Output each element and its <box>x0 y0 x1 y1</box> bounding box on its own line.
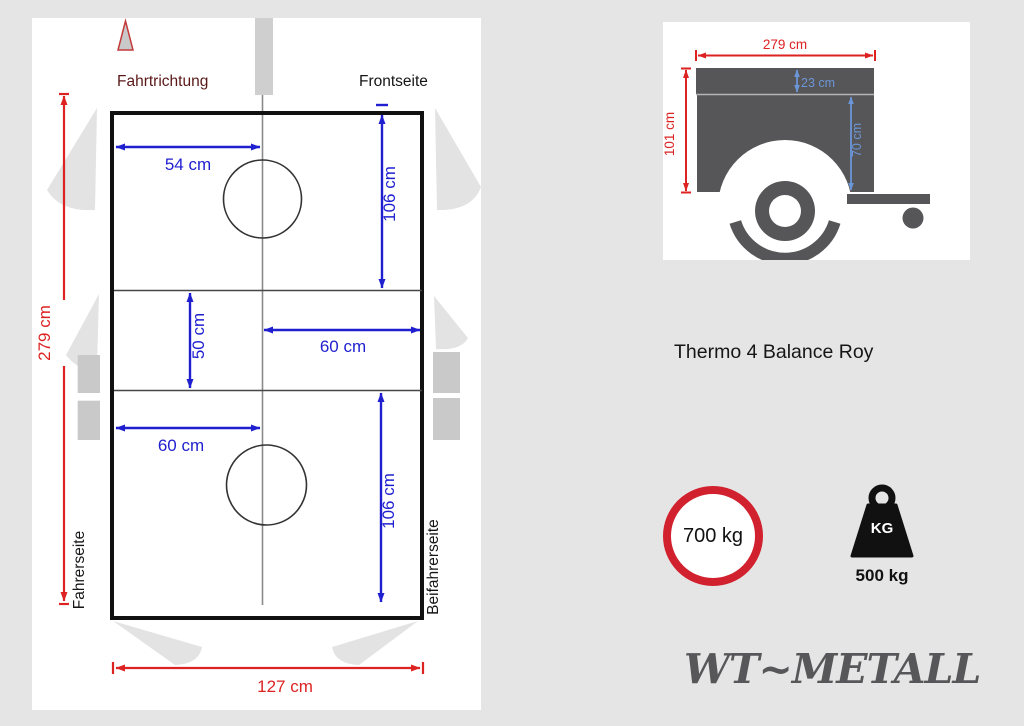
dim-top-width: 54 cm <box>165 155 211 174</box>
label-passenger-side: Beifahrerseite <box>425 519 442 615</box>
side-view-diagram: 279 cm 101 cm 23 cm 70 cm <box>663 22 970 260</box>
rear-circle <box>227 445 307 525</box>
side-flap-right-1 <box>433 352 460 393</box>
label-driver-side: Fahrerseite <box>71 531 88 609</box>
roof-vent-bar <box>255 18 273 95</box>
dim-front-depth: 106 cm <box>380 166 399 222</box>
trailer-outline <box>112 113 422 618</box>
drawbar <box>847 194 930 204</box>
max-weight-sign: 700 kg <box>663 486 763 586</box>
dim-partition-length: 50 cm <box>189 313 208 359</box>
door-swing-top-right <box>435 108 481 210</box>
wheel-hub <box>769 195 801 227</box>
door-swing-top-left <box>47 108 97 210</box>
dim-mid-right-width: 60 cm <box>320 337 366 356</box>
direction-arrow-triangle <box>118 21 133 50</box>
trailer-lid <box>696 68 874 94</box>
dim-total-width: 127 cm <box>257 677 313 696</box>
jockey-wheel <box>903 208 924 229</box>
dim-lid-height: 23 cm <box>801 76 835 90</box>
product-name: Thermo 4 Balance Roy <box>674 341 873 364</box>
label-front: Frontseite <box>359 73 428 90</box>
top-view-diagram: 54 cm 106 cm 50 cm 60 cm 60 cm 106 cm 27… <box>32 18 481 710</box>
dim-total-height: 101 cm <box>663 112 677 156</box>
dim-mid-left-width: 60 cm <box>158 436 204 455</box>
top-view-panel: 54 cm 106 cm 50 cm 60 cm 60 cm 106 cm 27… <box>32 18 481 710</box>
max-weight-value: 700 kg <box>683 525 743 548</box>
dim-total-length: 279 cm <box>35 305 54 361</box>
door-swing-bottom-right <box>332 621 418 665</box>
label-direction: Fahrtrichtung <box>117 73 208 90</box>
dim-body-height: 70 cm <box>850 123 864 157</box>
dim-rear-depth: 106 cm <box>379 473 398 529</box>
kg-label: KG <box>871 520 894 537</box>
payload-value: 500 kg <box>840 566 924 586</box>
side-flap-right-2 <box>433 398 460 440</box>
side-flap-left-1 <box>78 355 100 393</box>
page: 54 cm 106 cm 50 cm 60 cm 60 cm 106 cm 27… <box>0 0 1024 726</box>
side-view-panel: 279 cm 101 cm 23 cm 70 cm <box>663 22 970 260</box>
kg-weight-icon: KG <box>846 484 918 562</box>
brand-logo: WT~METALL <box>684 645 994 693</box>
side-flap-left-2 <box>78 401 100 440</box>
door-swing-mid-right <box>434 296 468 349</box>
dim-length: 279 cm <box>763 37 807 52</box>
door-swing-bottom-left <box>113 621 202 665</box>
